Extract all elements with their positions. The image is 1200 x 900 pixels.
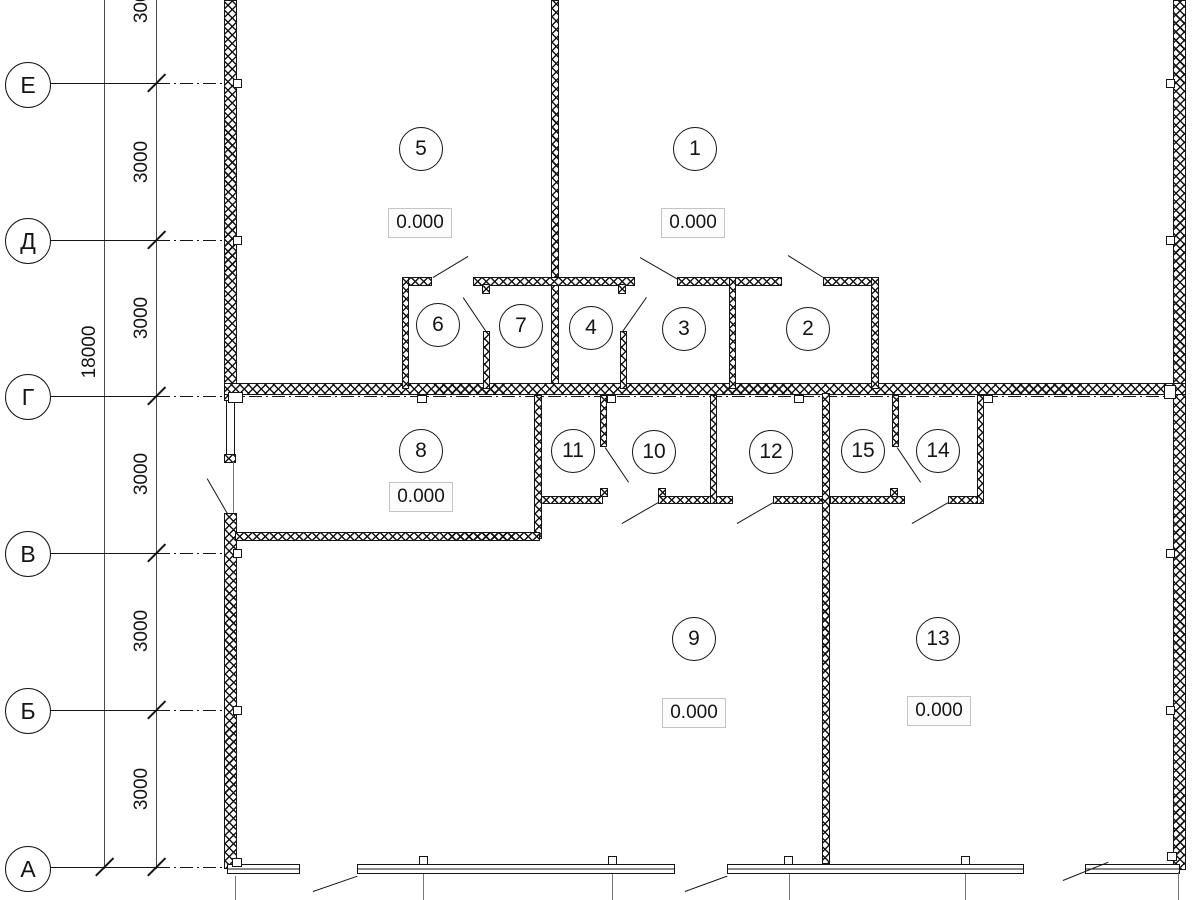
axis-bubble-e: Е <box>5 62 51 108</box>
partition-4-3 <box>620 331 627 389</box>
elevation-value-13: 0.000 <box>915 700 963 722</box>
axis-letter-v: В <box>20 541 35 568</box>
door-swing-11-10 <box>604 447 629 483</box>
room-number-4: 4 <box>585 316 597 340</box>
pilaster-left-b <box>233 706 242 715</box>
jamb-stub-15 <box>890 488 898 497</box>
partition-top-seg-d <box>823 277 877 286</box>
room-number-14: 14 <box>926 439 949 463</box>
wall-room8-right <box>534 395 542 539</box>
elevation-room8: 0.000 <box>389 482 453 512</box>
room-bubble-4: 4 <box>569 306 613 350</box>
axis-bubble-g: Г <box>5 374 51 420</box>
partition-15-14 <box>892 395 899 447</box>
pilaster-left-e <box>233 79 242 88</box>
jamb-square-g4 <box>983 395 993 403</box>
room-number-12: 12 <box>759 440 782 464</box>
door-swing-room3-to-1 <box>640 257 678 280</box>
pilaster-right-g <box>1164 385 1176 399</box>
partition-3-2 <box>729 277 736 389</box>
jamb-square-g1 <box>417 395 427 403</box>
axis-line-d-dashdot <box>157 240 224 241</box>
axis-letter-b: Б <box>20 698 35 725</box>
axis-line-b <box>49 710 157 711</box>
elevation-value-1: 0.000 <box>669 212 717 234</box>
dim-label-3000-gv: 3000 <box>131 444 151 504</box>
axis-line-d <box>49 240 157 241</box>
room-bubble-11: 11 <box>551 429 595 473</box>
wall-rooms-9-13 <box>822 393 830 864</box>
axis-line-v <box>49 553 157 554</box>
axis-letter-g: Г <box>22 384 34 411</box>
partition-10-12 <box>710 395 717 504</box>
room-bubble-12: 12 <box>749 430 793 474</box>
window-left-wall <box>226 401 235 455</box>
door-swing-entry-2 <box>685 876 728 893</box>
axis-line-a-dashdot <box>157 867 232 868</box>
window-segment-3 <box>727 864 1024 874</box>
wall-left-sill-block <box>224 454 236 463</box>
wall-room14-right <box>977 395 984 504</box>
extension-line-2 <box>423 874 424 900</box>
pilaster-right-b <box>1166 706 1175 715</box>
extension-line-1 <box>235 876 236 900</box>
room-bubble-15: 15 <box>841 429 885 473</box>
jamb-stub-4-3 <box>618 284 626 294</box>
room-bubble-1: 1 <box>673 127 717 171</box>
elevation-value-8: 0.000 <box>397 486 445 508</box>
pilaster-a6 <box>1167 852 1177 861</box>
pilaster-right-d <box>1166 236 1175 245</box>
axis-bubble-b: Б <box>5 688 51 734</box>
wall-room15-bottom <box>830 496 905 504</box>
room-number-15: 15 <box>851 439 874 463</box>
room-bubble-9: 9 <box>672 617 716 661</box>
room-number-3: 3 <box>678 317 690 341</box>
room-bubble-6: 6 <box>416 303 460 347</box>
jamb-square-g2 <box>607 395 616 403</box>
axis-line-e-dashdot <box>157 83 224 84</box>
opening-trace-line <box>233 462 234 513</box>
pilaster-a2 <box>419 856 428 865</box>
axis-bubble-a: А <box>5 846 51 892</box>
room-bubble-5: 5 <box>399 127 443 171</box>
room-bubble-2: 2 <box>786 307 830 351</box>
extension-line-3 <box>612 874 613 900</box>
room-number-2: 2 <box>802 317 814 341</box>
room-bubble-14: 14 <box>916 429 960 473</box>
jamb-stub-11 <box>600 488 608 497</box>
dim-label-18000: 18000 <box>79 312 99 392</box>
dim-label-3000-vb: 3000 <box>131 601 151 661</box>
jamb-square-g3 <box>794 395 804 403</box>
pilaster-a4 <box>784 856 793 865</box>
partition-11-10 <box>600 395 607 447</box>
door-swing-room2-to-1 <box>788 255 824 278</box>
door-swing-6-7 <box>462 297 487 333</box>
wall-room10-bottom <box>658 496 733 504</box>
wall-left-lower <box>224 513 237 869</box>
wall-room8-bottom <box>235 532 540 541</box>
jamb-stub-6-7 <box>482 284 490 294</box>
room-bubble-8: 8 <box>399 429 443 473</box>
axis-letter-a: А <box>20 856 35 883</box>
partition-room6-left <box>402 277 409 389</box>
wall-right <box>1173 0 1186 870</box>
axis-letter-d: Д <box>20 228 36 255</box>
elevation-room1: 0.000 <box>661 208 725 238</box>
partition-top-seg-b <box>473 277 635 286</box>
pilaster-right-v <box>1166 549 1175 558</box>
dimension-line-intervals <box>156 0 157 869</box>
axis-line-b-dashdot <box>157 710 224 711</box>
pilaster-right-e <box>1166 79 1175 88</box>
door-swing-4-3 <box>621 297 647 333</box>
window-segment-2 <box>357 864 675 874</box>
axis-line-v-dashdot <box>157 553 224 554</box>
extension-line-5 <box>965 874 966 900</box>
wall-room11-bottom <box>541 496 603 504</box>
door-swing-room14 <box>912 502 949 524</box>
door-swing-room6-to-5 <box>433 256 469 278</box>
room-number-1: 1 <box>689 137 701 161</box>
pilaster-a5 <box>961 856 970 865</box>
elevation-value-9: 0.000 <box>670 702 718 724</box>
door-swing-entry-1 <box>313 876 358 893</box>
door-swing-room8-exterior <box>206 478 227 513</box>
room-number-5: 5 <box>415 137 427 161</box>
room-number-13: 13 <box>926 627 949 651</box>
dim-label-3000-ba: 3000 <box>131 759 151 819</box>
dimension-line-overall <box>104 0 105 869</box>
extension-line-6 <box>1178 872 1179 900</box>
partition-room2-right <box>871 277 879 389</box>
room-bubble-10: 10 <box>632 430 676 474</box>
axis-bubble-d: Д <box>5 218 51 264</box>
room-number-8: 8 <box>415 439 427 463</box>
dim-label-3000-top: 3000 <box>131 0 151 32</box>
axis-line-e <box>49 83 157 84</box>
wall-center-rooms-5-1 <box>551 0 559 390</box>
room-number-11: 11 <box>562 439 584 463</box>
dim-label-3000-ed: 3000 <box>131 132 151 192</box>
extension-line-4 <box>789 874 790 900</box>
room-bubble-3: 3 <box>662 307 706 351</box>
axis-line-g-dashdot <box>157 396 1186 397</box>
room-bubble-13: 13 <box>916 617 960 661</box>
room-number-7: 7 <box>515 314 527 338</box>
wall-axis-g <box>224 383 1186 395</box>
axis-letter-e: Е <box>20 72 35 99</box>
wall-left-upper <box>224 0 237 401</box>
room-number-10: 10 <box>642 440 665 464</box>
pilaster-left-g <box>228 392 243 403</box>
elevation-value-5: 0.000 <box>396 212 444 234</box>
elevation-room9: 0.000 <box>662 698 726 728</box>
dim-label-3000-dg: 3000 <box>131 288 151 348</box>
axis-bubble-v: В <box>5 531 51 577</box>
pilaster-left-d <box>233 236 242 245</box>
pilaster-left-v <box>233 549 242 558</box>
partition-6-7 <box>483 331 490 389</box>
room-number-9: 9 <box>688 627 700 651</box>
pilaster-a3 <box>608 856 617 865</box>
door-swing-room10 <box>622 502 659 524</box>
door-swing-room12 <box>737 502 774 524</box>
elevation-room5: 0.000 <box>388 208 452 238</box>
room-number-6: 6 <box>432 313 444 337</box>
pilaster-a1 <box>232 858 242 867</box>
floor-plan-canvas: 3000 3000 3000 3000 3000 3000 18000 Е Д … <box>0 0 1200 900</box>
elevation-room13: 0.000 <box>907 696 971 726</box>
axis-line-g <box>49 396 157 397</box>
room-bubble-7: 7 <box>499 304 543 348</box>
